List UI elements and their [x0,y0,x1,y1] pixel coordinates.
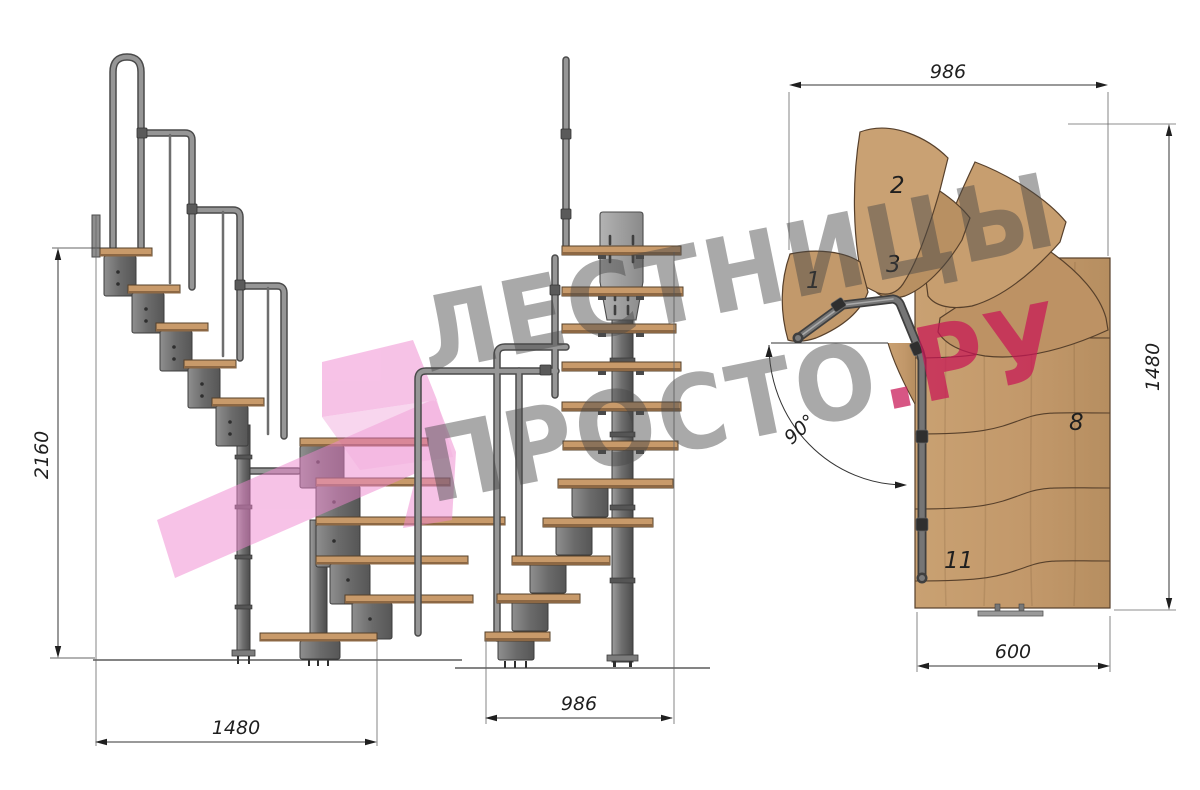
dim-plan-flight-width: 600 [995,641,1031,663]
dim-side-total-run: 1480 [212,717,260,739]
dim-plan-depth: 1480 [1142,343,1164,391]
dim-plan-top-width: 986 [930,61,966,83]
dim-side-total-height: 2160 [31,431,53,479]
step-number-11: 11 [944,548,973,574]
dim-front-width: 986 [561,693,597,715]
staircase-drawing: 2160 1480 [0,0,1200,790]
drawing-canvas: 2160 1480 [0,0,1200,790]
step-number-8: 8 [1069,410,1084,436]
